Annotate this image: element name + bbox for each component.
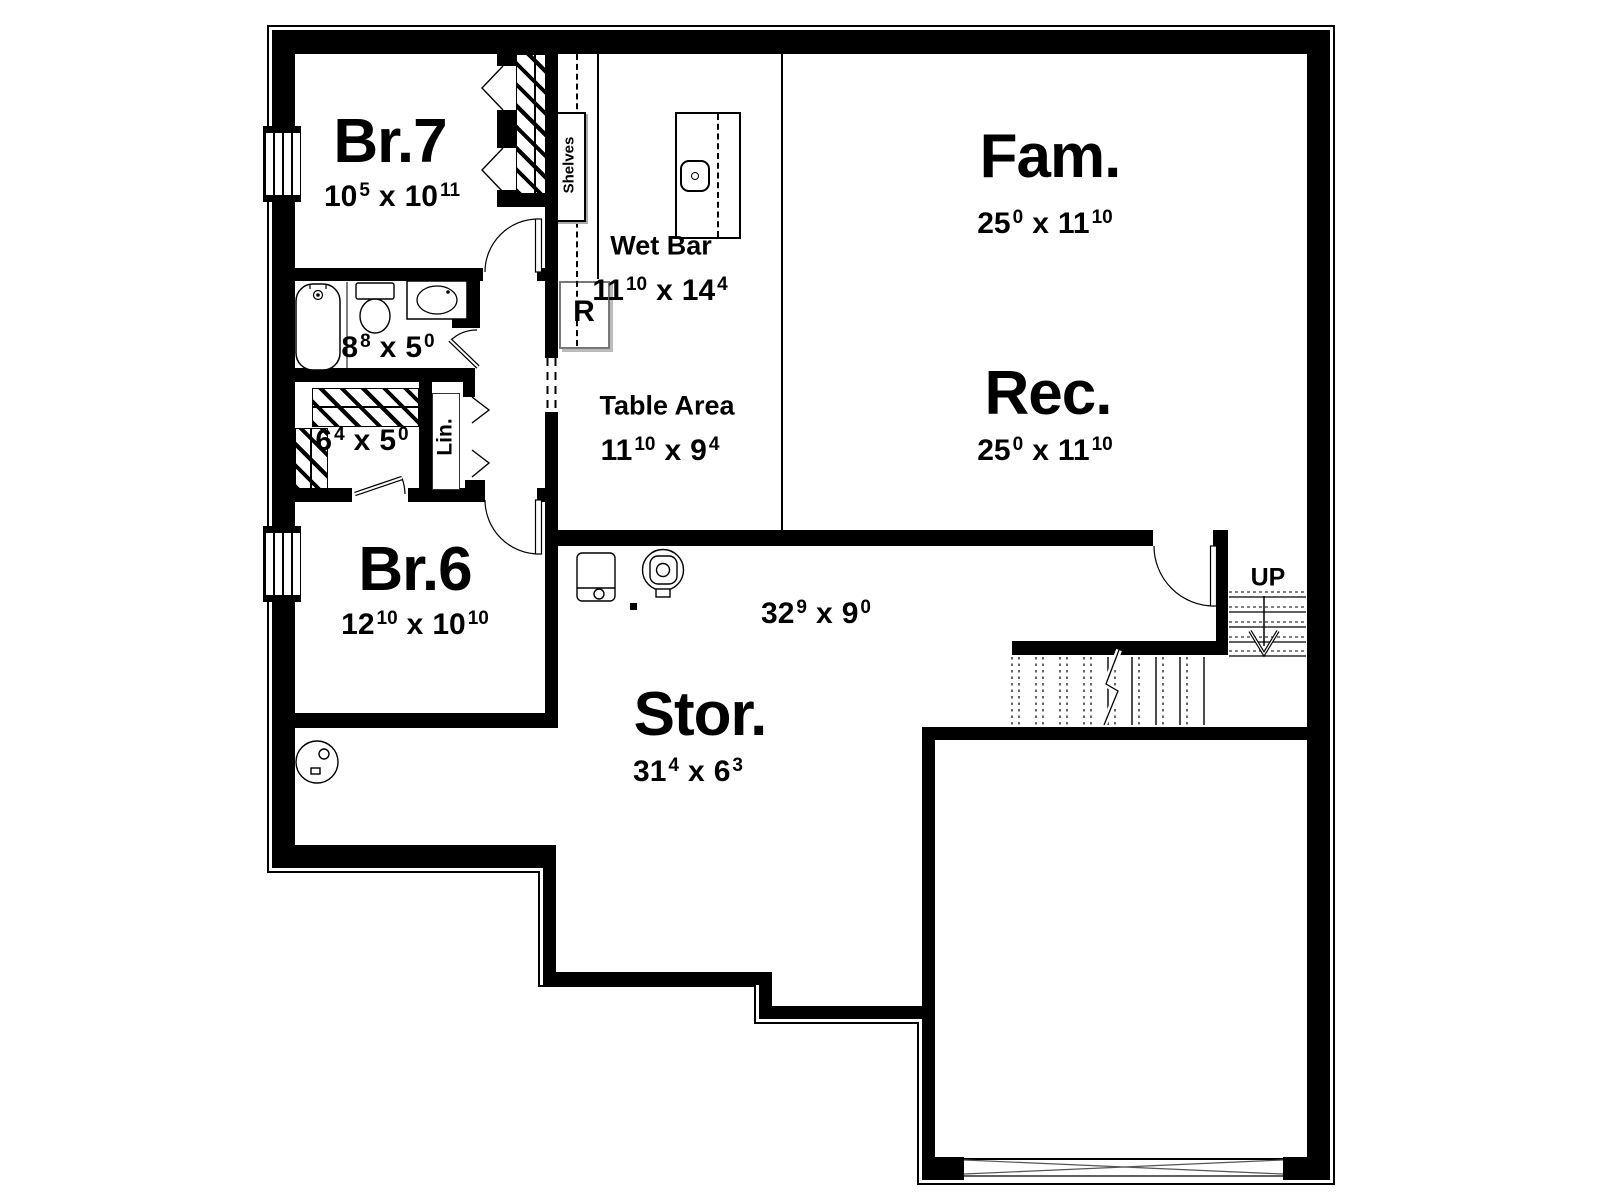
room-label-br6: Br.6	[358, 539, 471, 601]
cased-opening	[548, 358, 556, 412]
door-closet	[355, 478, 405, 494]
room-dim-table-area: 1110x94	[601, 436, 720, 466]
door-stairs	[1154, 546, 1217, 606]
door-br7	[485, 219, 542, 272]
room-dim-rec: 250x1110	[977, 436, 1113, 466]
bathtub	[296, 282, 347, 370]
floor-plan: Br.7 105x1011 88x50 64x50 Lin. Shelves R…	[0, 0, 1600, 1200]
door-br6	[485, 500, 542, 554]
stairs-up-label: UP	[1251, 566, 1286, 591]
bifold-doors-br7-closet	[482, 66, 503, 192]
room-dim-br6: 1210x1010	[341, 610, 489, 640]
door-bathroom	[450, 330, 478, 367]
room-dim-stor: 314x63	[633, 757, 743, 787]
room-dim-stor-upper: 329x90	[761, 599, 871, 629]
room-label-br7: Br.7	[333, 111, 446, 173]
room-dim-br7: 105x1011	[324, 182, 460, 212]
room-dim-wetbar: 1110x144	[592, 276, 728, 306]
room-dim-fam: 250x1110	[977, 209, 1113, 239]
room-label-rec: Rec.	[985, 363, 1112, 425]
room-dim-closet: 64x50	[315, 426, 408, 456]
bifold-doors-linen	[472, 397, 489, 477]
furnace	[643, 550, 684, 598]
vanity-sink	[407, 281, 467, 319]
room-label-fam: Fam.	[980, 126, 1121, 188]
stairs-lower-run	[1012, 650, 1204, 725]
toilet	[356, 283, 394, 333]
room-dim-bath: 88x50	[341, 333, 434, 363]
room-label-wetbar: Wet Bar	[610, 233, 712, 260]
water-heater	[577, 553, 615, 601]
room-label-table-area: Table Area	[599, 393, 734, 420]
linen-label: Lin.	[435, 418, 456, 455]
shelves-label: Shelves	[562, 137, 577, 194]
sump-pump	[296, 741, 338, 783]
room-label-stor: Stor.	[634, 684, 767, 746]
stairs-direction-arrow	[1250, 596, 1278, 654]
floor-drain	[630, 603, 637, 610]
